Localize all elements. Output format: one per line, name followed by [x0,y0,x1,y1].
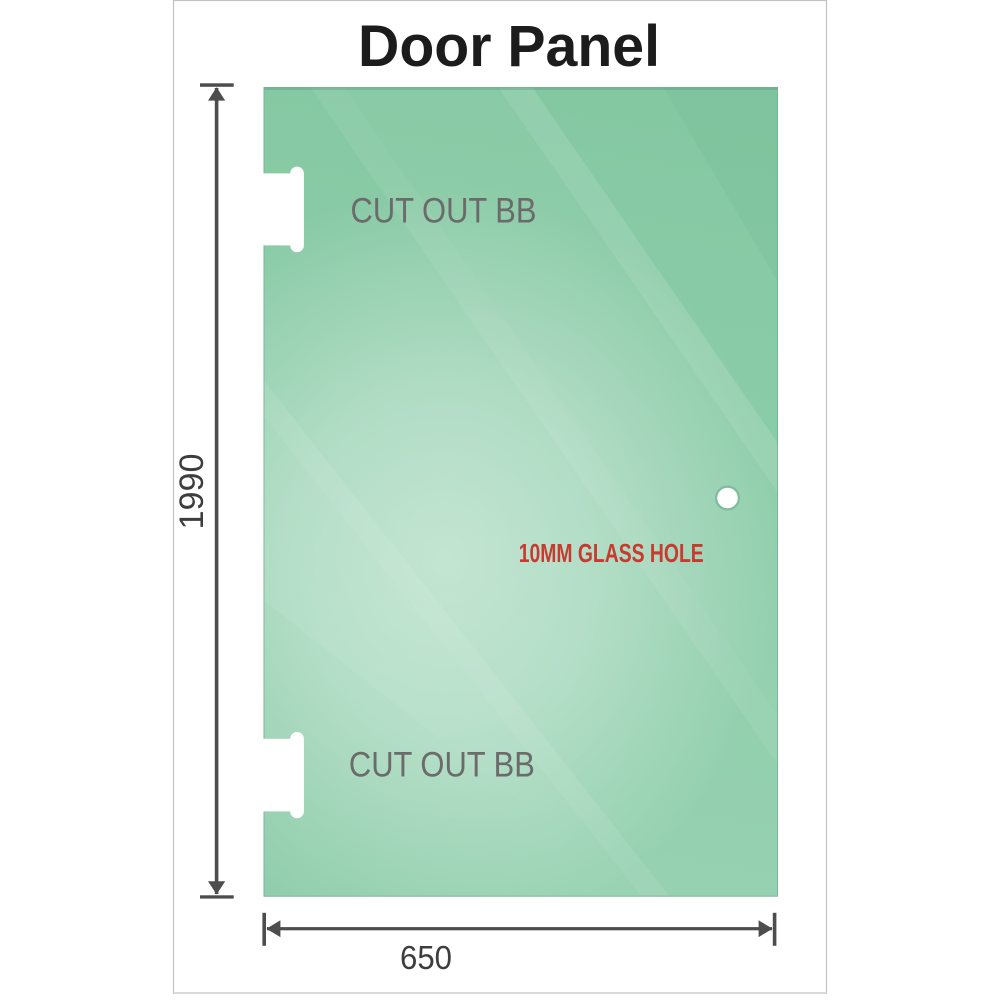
svg-text:10MM GLASS HOLE: 10MM GLASS HOLE [519,538,704,568]
svg-text:650: 650 [400,940,452,977]
svg-text:1990: 1990 [173,454,211,530]
svg-text:CUT OUT BB: CUT OUT BB [351,191,537,230]
svg-text:Door Panel: Door Panel [358,14,660,79]
svg-text:CUT OUT BB: CUT OUT BB [349,745,535,784]
